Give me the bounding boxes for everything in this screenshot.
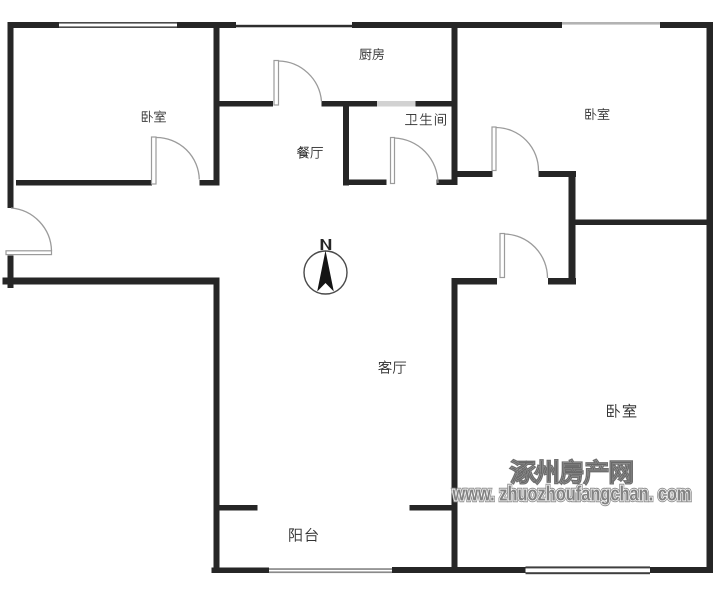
svg-text:www. zhuozhoufangchan. com: www. zhuozhoufangchan. com (452, 484, 692, 506)
